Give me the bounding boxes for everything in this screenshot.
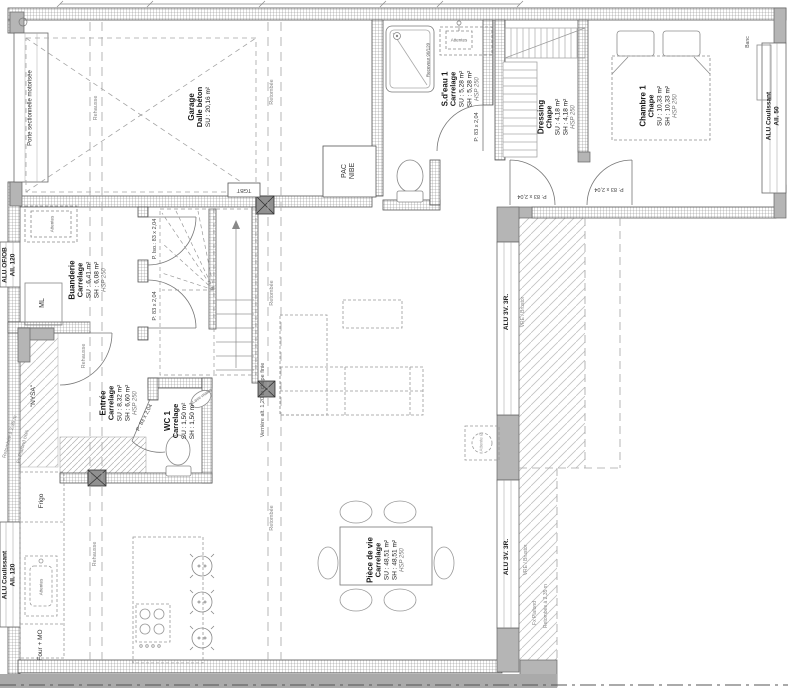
label-door-iso: P. Iso.: 83 x 2,04 xyxy=(152,219,158,260)
bar-stools xyxy=(190,554,214,650)
label-door-buanderie: P: 83 x 2,04 xyxy=(152,291,158,320)
room-sh: SH : 48,51 m² xyxy=(392,537,400,583)
label-banc: Banc xyxy=(746,36,752,47)
label-vre-1: VRE / Brustor xyxy=(521,297,527,328)
room-finish: Chape xyxy=(648,85,657,126)
room-su: SU : 20,16 m² xyxy=(205,87,213,127)
window-sill: All. 120 xyxy=(9,247,17,283)
room-hsp: HSP 250 xyxy=(672,85,679,126)
room-su: SU : 1,50 m² xyxy=(181,403,189,439)
room-label-dressing: Dressing Chape SU : 4,18 m² SH : 4,18 m²… xyxy=(537,99,578,135)
label-attentes-kitchen: Attentes xyxy=(38,579,43,596)
room-su: SU : 8,32 m² xyxy=(117,385,125,421)
stairs-dressing xyxy=(503,28,585,157)
label-window-3v3r-1: ALU 3V. 3R. xyxy=(503,294,511,330)
stairs-main xyxy=(160,209,256,375)
window-type: ALU Coulissant xyxy=(1,551,9,599)
room-su: SU : 10,33 m² xyxy=(657,85,665,126)
label-window-coulissant-left: ALU Coulissant All. 120 xyxy=(1,551,16,599)
room-finish: Carrelage xyxy=(108,385,117,421)
room-hsp: HSP 250 xyxy=(132,385,139,421)
room-sh: SH : 5,28 m² xyxy=(467,71,475,107)
label-retombee-3: Retombée xyxy=(269,505,275,530)
window-sill: All. 50 xyxy=(773,92,781,140)
room-finish: Dalle béton xyxy=(196,87,205,127)
room-label-piece-de-vie: Pièce de vie Carrelage SU : 48,51 m² SH … xyxy=(366,537,407,583)
window-type: ALU Coulissant xyxy=(765,92,773,140)
label-verriere: Verrière alt. 1,20 m chape finie xyxy=(260,363,266,438)
room-label-chambre1: Chambre 1 Chape SU : 10,33 m² SH : 10,33… xyxy=(639,85,680,126)
label-window-coulissant-right: ALU Coulissant All. 50 xyxy=(765,92,780,140)
room-label-entree: Entrée Carrelage SU : 8,32 m² SH : 6,60 … xyxy=(99,385,140,421)
room-sh: SH : 1,50 m² xyxy=(189,403,197,439)
label-fridge: Frigo xyxy=(38,494,46,509)
label-retombee-235-right: Retombée à 2,35 m xyxy=(544,584,550,628)
bathroom-fixtures xyxy=(25,21,492,476)
window-type: ALU OF/OB xyxy=(1,247,9,283)
room-finish: Carrelage xyxy=(77,260,86,299)
label-door-dressing: P: 83 x 2,04 xyxy=(517,193,546,199)
label-oven-micro: Four + MO xyxy=(37,629,45,660)
room-finish: Carrelage xyxy=(450,71,459,107)
room-su: SU : 5,28 m² xyxy=(459,71,467,107)
label-door-sdeau: P: 83 x 2,04 xyxy=(474,112,480,141)
label-washing-machine: ML xyxy=(39,298,47,308)
pac-line2: NIBE xyxy=(349,163,357,179)
label-attentes-sdeau: Attentes xyxy=(451,37,468,42)
room-label-sdeau1: S.d'eau 1 Carrelage SU : 5,28 m² SH : 5,… xyxy=(441,71,482,107)
label-attentes-buanderie: Attentes xyxy=(49,216,54,233)
room-sh: SH : 6,60 m² xyxy=(125,385,133,421)
label-window-3v3r-2: ALU 3V. 3R. xyxy=(503,539,511,575)
room-hsp: HSP 250 xyxy=(399,537,406,583)
label-nysa-closet: "NYSA" xyxy=(30,385,38,407)
room-sh: SH : 6,08 m² xyxy=(94,260,102,299)
sofa xyxy=(280,300,499,460)
room-sh: SH : 4,18 m² xyxy=(563,99,571,135)
label-retombee-1: Retombée xyxy=(269,79,275,104)
kitchen xyxy=(20,472,214,663)
room-label-wc1: WC 1 Carrelage SU : 1,50 m² SH : 1,50 m² xyxy=(163,403,197,439)
floor-plan: Garage Dalle béton SU : 20,16 m² S.d'eau… xyxy=(0,0,788,688)
room-hsp: HSP 250 xyxy=(101,260,108,299)
pac-line1: PAC xyxy=(341,163,349,179)
label-window-ofob: ALU OF/OB All. 120 xyxy=(1,247,16,283)
label-attente-o: Attente Ø xyxy=(478,432,483,451)
label-rehausse-3: Rehausse xyxy=(92,542,98,567)
label-rehausse-2: Rehausse xyxy=(81,344,87,369)
room-label-garage: Garage Dalle béton SU : 20,16 m² xyxy=(187,87,213,127)
room-sh: SH : 10,33 m² xyxy=(665,85,673,126)
room-su: SU : 6,41 m² xyxy=(86,260,94,299)
label-fx-plafond-right: Fx Plafond xyxy=(533,601,539,625)
label-door-chambre: P: 83 x 2,04 xyxy=(594,186,623,192)
room-su: SU : 48,51 m² xyxy=(384,537,392,583)
window-sill: All. 120 xyxy=(9,551,17,599)
room-finish: Chape xyxy=(546,99,555,135)
room-finish: Carrelage xyxy=(173,403,182,439)
label-garage-door: Porte sectionnelle motorisée xyxy=(27,70,34,146)
room-finish: Carrelage xyxy=(375,537,384,583)
room-label-buanderie: Buanderie Carrelage SU : 6,41 m² SH : 6,… xyxy=(68,260,109,299)
room-su: SU : 4,18 m² xyxy=(555,99,563,135)
room-hsp: HSP 250 xyxy=(570,99,577,135)
label-tgbt: TGBT xyxy=(237,187,252,193)
label-rehausse-1: Rehausse xyxy=(93,96,99,121)
label-shower-tray: Receveur 90/120 xyxy=(425,43,430,77)
room-hsp: HSP 250 xyxy=(474,71,481,107)
label-retombee-2: Retombée xyxy=(269,280,275,305)
label-vre-2: VRE / Brustor xyxy=(524,545,530,576)
label-pac-nibe: PAC NIBE xyxy=(341,163,358,179)
